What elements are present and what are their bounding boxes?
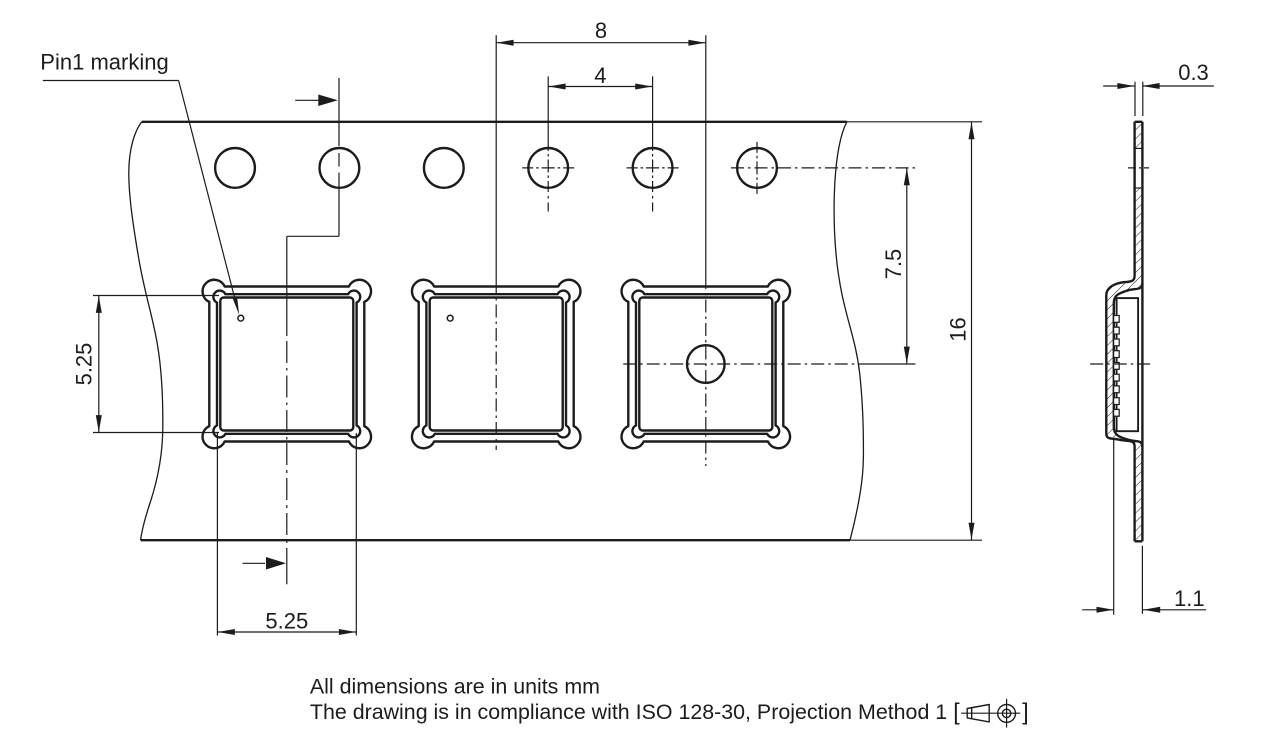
svg-text:]: ]	[1022, 699, 1028, 725]
svg-text:16: 16	[946, 317, 971, 341]
svg-text:All dimensions are in units mm: All dimensions are in units mm	[310, 674, 600, 698]
svg-text:[: [	[953, 699, 960, 725]
svg-text:7.5: 7.5	[881, 249, 906, 280]
svg-text:The drawing is in compliance w: The drawing is in compliance with ISO 12…	[310, 700, 947, 724]
svg-text:5.25: 5.25	[265, 609, 308, 634]
svg-text:8: 8	[595, 18, 607, 43]
svg-text:1.1: 1.1	[1174, 586, 1205, 611]
svg-text:4: 4	[594, 63, 606, 88]
svg-text:0.3: 0.3	[1178, 60, 1209, 85]
svg-text:5.25: 5.25	[72, 343, 97, 386]
svg-text:Pin1 marking: Pin1 marking	[40, 50, 168, 75]
